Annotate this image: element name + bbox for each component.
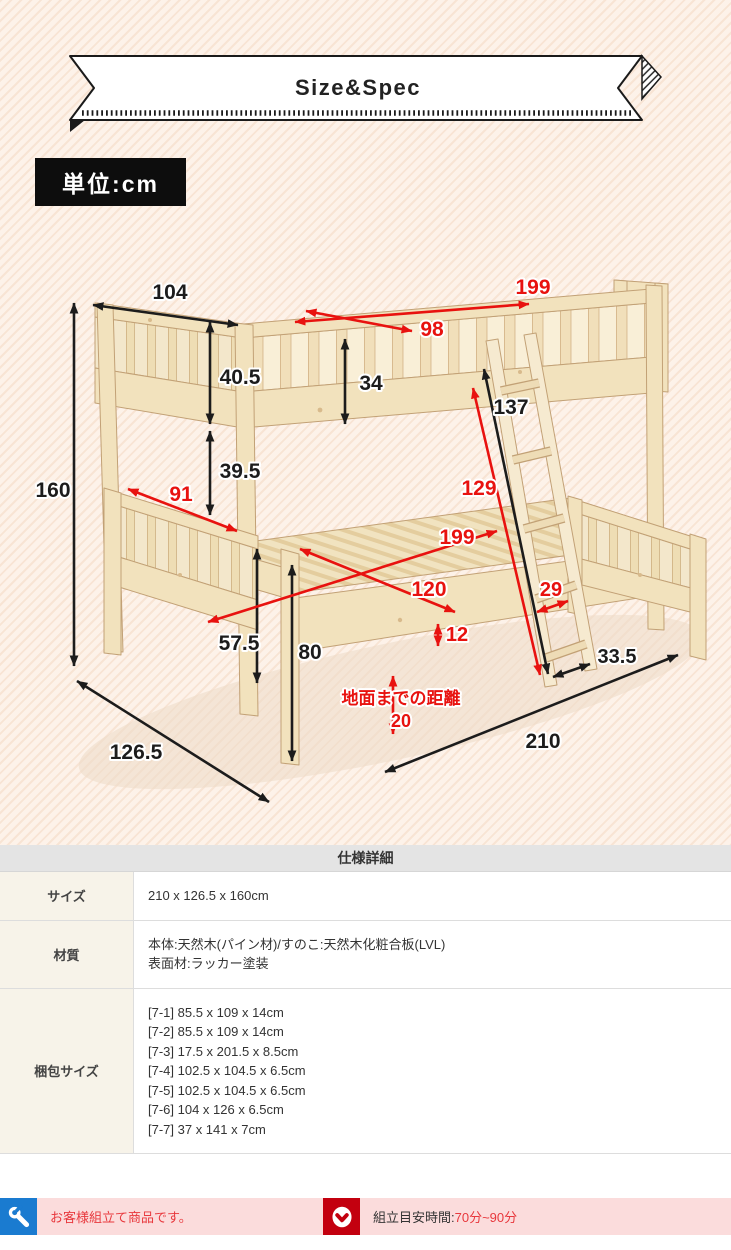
dimension-label: 29 <box>540 579 562 601</box>
spec-row-value: 210 x 126.5 x 160cm <box>134 872 731 920</box>
assembly-notice: お客様組立て商品です。 <box>37 1198 323 1235</box>
dimension-label: 98 <box>420 318 444 341</box>
spec-row-label: サイズ <box>0 872 134 920</box>
spec-value-line: [7-7] 37 x 141 x 7cm <box>148 1120 717 1140</box>
dimension-label: 20 <box>391 711 411 731</box>
dimension-label: 80 <box>298 641 321 664</box>
spec-value-line: [7-4] 102.5 x 104.5 x 6.5cm <box>148 1061 717 1081</box>
dimension-label: 120 <box>411 578 446 601</box>
spec-value-line: 本体:天然木(パイン材)/すのこ:天然木化粧合板(LVL) <box>148 935 717 955</box>
spec-value-line: 210 x 126.5 x 160cm <box>148 886 717 906</box>
dimension-label: 57.5 <box>219 632 260 655</box>
dimension-label: 34 <box>359 372 383 395</box>
spec-row-label: 梱包サイズ <box>0 989 134 1154</box>
spec-value-line: 表面材:ラッカー塗装 <box>148 954 717 974</box>
assembly-time-value: 70分~90分 <box>455 1207 518 1226</box>
spec-value-line: [7-6] 104 x 126 x 6.5cm <box>148 1100 717 1120</box>
spec-row: 材質本体:天然木(パイン材)/すのこ:天然木化粧合板(LVL)表面材:ラッカー塗… <box>0 921 731 989</box>
assembly-time-notice: 組立目安時間: 70分~90分 <box>360 1198 731 1235</box>
unit-badge-label: 単位:cm <box>62 165 159 199</box>
wrench-icon <box>0 1198 37 1235</box>
unit-badge: 単位:cm <box>35 158 186 206</box>
spec-row-value: 本体:天然木(パイン材)/すのこ:天然木化粧合板(LVL)表面材:ラッカー塗装 <box>134 921 731 988</box>
dimension-label: 39.5 <box>220 460 261 483</box>
assembly-time-label: 組立目安時間: <box>373 1207 455 1226</box>
dimension-label: 40.5 <box>220 366 261 389</box>
dimension-label: 12 <box>446 624 468 646</box>
spec-value-line: [7-2] 85.5 x 109 x 14cm <box>148 1022 717 1042</box>
dimension-label: 33.5 <box>598 646 637 668</box>
dimension-label: 137 <box>493 396 528 419</box>
dimension-label: 210 <box>525 730 560 753</box>
spec-table: 仕様詳細 サイズ210 x 126.5 x 160cm材質本体:天然木(パイン材… <box>0 845 731 1154</box>
size-spec-section: 16010440.53439.513757.58033.5210126.5199… <box>0 0 731 845</box>
dimension-label: 199 <box>515 276 550 299</box>
spec-table-rows: サイズ210 x 126.5 x 160cm材質本体:天然木(パイン材)/すのこ… <box>0 872 731 1154</box>
product-spec-page: 16010440.53439.513757.58033.5210126.5199… <box>0 0 731 1250</box>
ribbon-right-fold <box>642 56 661 99</box>
spec-row: サイズ210 x 126.5 x 160cm <box>0 872 731 921</box>
spec-row-label: 材質 <box>0 921 134 988</box>
spec-row-value: [7-1] 85.5 x 109 x 14cm[7-2] 85.5 x 109 … <box>134 989 731 1154</box>
dimension-label: 129 <box>461 477 496 500</box>
dimension-label: 91 <box>169 483 193 506</box>
spec-value-line: [7-5] 102.5 x 104.5 x 6.5cm <box>148 1081 717 1101</box>
dimension-label: 104 <box>152 281 187 304</box>
dimension-label: 199 <box>439 526 474 549</box>
dimension-label: 126.5 <box>110 741 163 764</box>
ribbon-left-fold <box>70 120 85 132</box>
spec-row: 梱包サイズ[7-1] 85.5 x 109 x 14cm[7-2] 85.5 x… <box>0 989 731 1155</box>
spec-table-title: 仕様詳細 <box>0 845 731 872</box>
ribbon-title: Size&Spec <box>295 75 421 100</box>
bed-illustration <box>67 280 713 825</box>
dimension-label: 地面までの距離 <box>342 688 461 708</box>
notice-bar: お客様組立て商品です。 組立目安時間: 70分~90分 <box>0 1198 731 1235</box>
spec-value-line: [7-3] 17.5 x 201.5 x 8.5cm <box>148 1042 717 1062</box>
section-ribbon: Size&Spec <box>56 46 676 138</box>
spec-value-line: [7-1] 85.5 x 109 x 14cm <box>148 1003 717 1023</box>
clock-icon <box>323 1198 360 1235</box>
dimension-label: 160 <box>35 479 70 502</box>
